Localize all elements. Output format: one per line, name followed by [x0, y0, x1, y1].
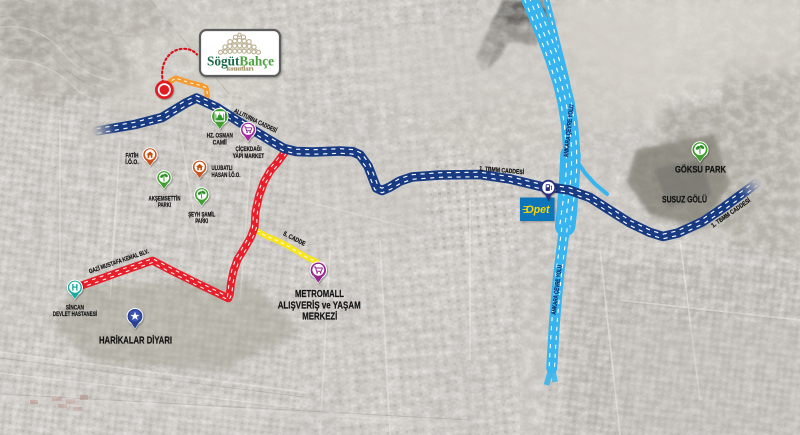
svg-text:HASAN İ.Ö.O.: HASAN İ.Ö.O. — [212, 170, 241, 179]
svg-text:HARİKALAR DİYARI: HARİKALAR DİYARI — [99, 336, 172, 347]
svg-text:PARKI: PARKI — [158, 202, 171, 209]
svg-text:ÇİÇEKDAĞI: ÇİÇEKDAĞI — [236, 144, 262, 153]
svg-text:GÖKSU PARK: GÖKSU PARK — [675, 164, 726, 175]
svg-text:ALIŞVERİŞ ve YAŞAM: ALIŞVERİŞ ve YAŞAM — [278, 300, 361, 311]
svg-text:Opet: Opet — [526, 204, 551, 216]
svg-text:CAMİİ: CAMİİ — [213, 138, 227, 146]
svg-text:İ.Ö.O.: İ.Ö.O. — [125, 157, 139, 166]
svg-text:PARKI: PARKI — [195, 218, 208, 225]
svg-text:H: H — [72, 283, 79, 293]
svg-text:METROMALL: METROMALL — [295, 289, 344, 300]
svg-text:SUSUZ GÖLÜ: SUSUZ GÖLÜ — [662, 193, 707, 204]
svg-text:YAPI MARKET: YAPI MARKET — [233, 153, 265, 160]
svg-text:DEVLET HASTANESİ: DEVLET HASTANESİ — [53, 310, 97, 318]
svg-text:konutları: konutları — [227, 66, 254, 73]
svg-text:MERKEZİ: MERKEZİ — [302, 312, 337, 323]
